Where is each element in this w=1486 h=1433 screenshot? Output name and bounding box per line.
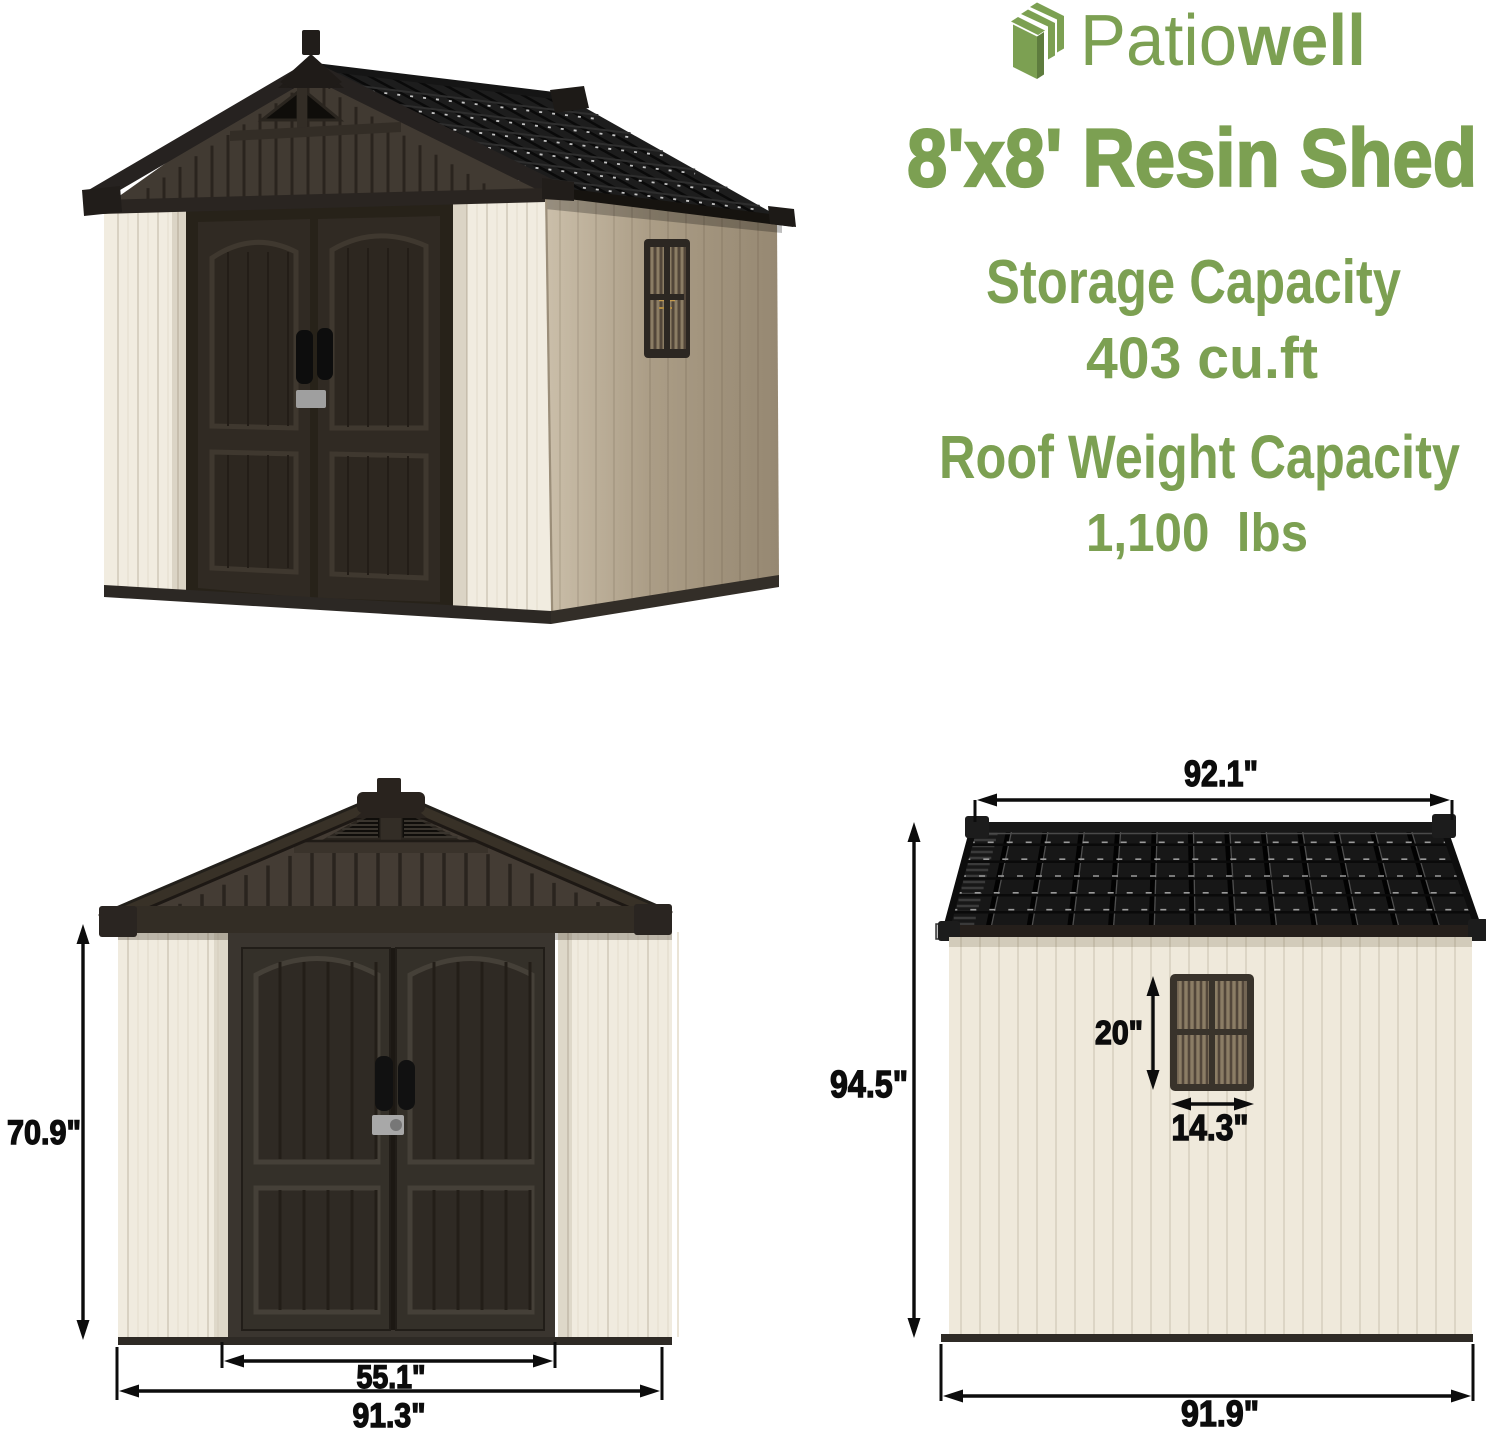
svg-text:Patio: Patio (1080, 1, 1237, 81)
svg-text:Roof Weight Capacity: Roof Weight Capacity (939, 423, 1460, 491)
svg-text:92.1": 92.1" (1184, 753, 1258, 794)
svg-text:94.5": 94.5" (830, 1064, 908, 1106)
svg-text:8'x8' Resin Shed: 8'x8' Resin Shed (907, 113, 1477, 204)
svg-text:70.9": 70.9" (7, 1114, 81, 1152)
svg-text:403 cu.ft: 403 cu.ft (1086, 326, 1318, 391)
svg-text:Storage Capacity: Storage Capacity (986, 248, 1401, 317)
svg-text:91.3": 91.3" (353, 1397, 426, 1428)
svg-text:91.9": 91.9" (1181, 1393, 1259, 1428)
svg-text:1,100 lbs: 1,100 lbs (1086, 503, 1308, 563)
svg-text:14.3": 14.3" (1172, 1107, 1249, 1148)
svg-text:20": 20" (1095, 1014, 1143, 1051)
svg-text:well: well (1237, 1, 1366, 81)
